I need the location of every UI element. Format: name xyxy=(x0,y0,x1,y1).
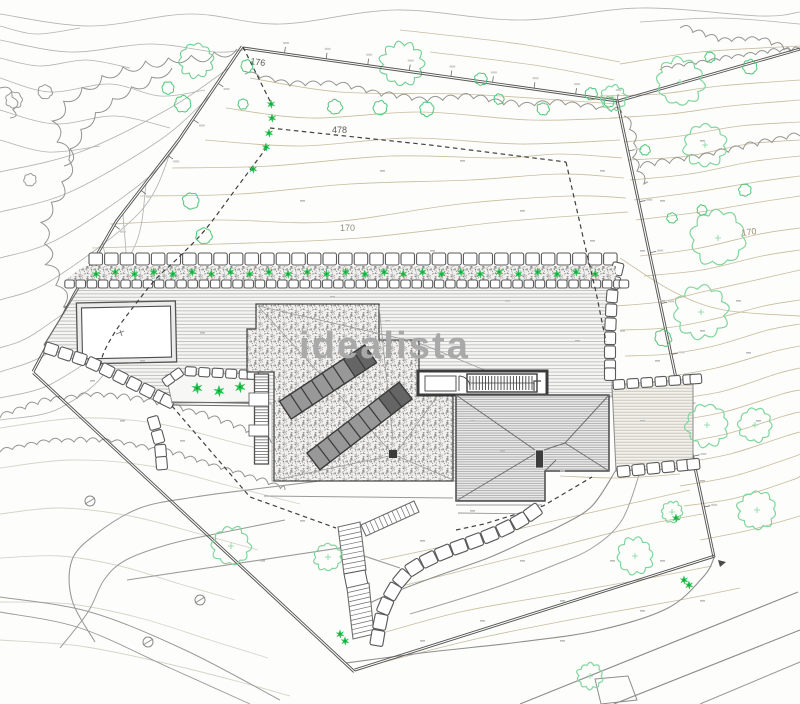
svg-text:idealista: idealista xyxy=(299,325,470,367)
svg-text:478: 478 xyxy=(332,125,347,135)
svg-text:170: 170 xyxy=(340,223,355,233)
svg-text:170: 170 xyxy=(741,226,757,238)
svg-text:176: 176 xyxy=(250,56,266,68)
